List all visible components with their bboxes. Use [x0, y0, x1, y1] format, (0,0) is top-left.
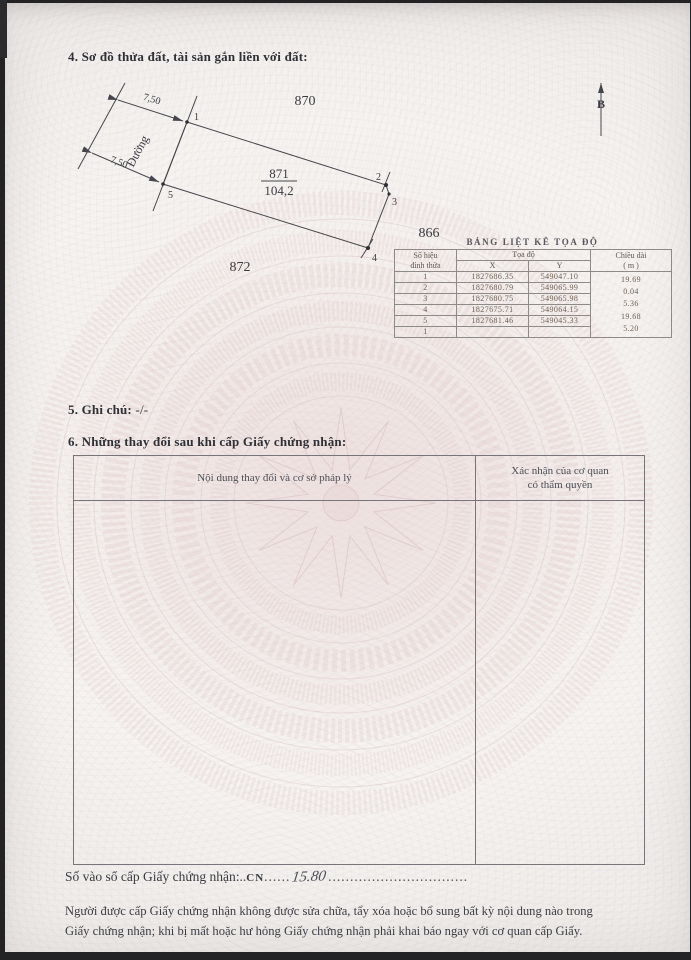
section5-value: -/-	[132, 402, 148, 417]
registry-handwritten-number: 15.80	[291, 868, 327, 886]
col-header-vertex: Số hiệu đỉnh thửa	[395, 250, 457, 272]
changes-col2-body	[476, 501, 644, 864]
neighbor-parcel-870: 870	[295, 94, 316, 109]
registry-code: CN	[246, 872, 264, 884]
changes-col1-header: Nội dung thay đổi và cơ sở pháp lý	[74, 456, 476, 501]
vertex-label-5: 5	[168, 190, 173, 201]
dim-label-top: 7,50	[142, 92, 162, 108]
north-label: B	[597, 97, 605, 111]
col-header-x: X	[457, 261, 529, 272]
coordinate-table-title: BẢNG LIỆT KÊ TỌA ĐỘ	[394, 237, 671, 247]
certificate-paper: 4. Sơ đồ thửa đất, tài sản gắn liền với …	[5, 3, 690, 952]
certificate-page-photo: 4. Sơ đồ thửa đất, tài sản gắn liền với …	[0, 0, 691, 960]
vertex-label-2: 2	[376, 172, 381, 183]
changes-col1-body	[74, 501, 476, 864]
changes-col2-header: Xác nhận của cơ quan có thẩm quyền	[476, 456, 644, 501]
vertex-dot-2	[384, 183, 388, 187]
photo-edge-shadow	[0, 0, 7, 58]
col-header-coords: Tọa độ	[457, 250, 591, 261]
col-header-y: Y	[529, 261, 591, 272]
vertex-label-1: 1	[194, 112, 199, 123]
lengths-cell: 19.69 0.04 5.36 19.68 5.20	[591, 272, 672, 338]
section6-title: 6. Những thay đổi sau khi cấp Giấy chứng…	[68, 434, 346, 450]
parcel-number-871: 871	[269, 166, 289, 181]
vertex-dot-1	[185, 120, 189, 124]
vertex-dot-3	[387, 192, 390, 195]
coordinate-table: BẢNG LIỆT KÊ TỌA ĐỘ Số hiệu đỉnh thửa Tọ…	[394, 237, 671, 338]
vertex-dot-5	[161, 182, 165, 186]
footer-warning: Người được cấp Giấy chứng nhận không đượ…	[65, 901, 647, 941]
col-header-length: Chiều dài ( m )	[591, 250, 672, 272]
section5-note: 5. Ghi chú: -/-	[68, 402, 148, 418]
changes-table: Nội dung thay đổi và cơ sở pháp lý Xác n…	[73, 455, 645, 865]
registry-number-line: Số vào sổ cấp Giấy chứng nhận:..CN......…	[65, 869, 468, 886]
table-row: 11827686.35549047.10 19.69 0.04 5.36 19.…	[395, 272, 672, 283]
parcel-area: 104,2	[264, 183, 293, 198]
vertex-label-3: 3	[392, 197, 397, 208]
vertex-dot-4	[366, 246, 370, 250]
vertex-label-4: 4	[372, 253, 377, 264]
registry-label: Số vào sổ cấp Giấy chứng nhận:..	[65, 869, 246, 884]
neighbor-parcel-872: 872	[230, 260, 251, 275]
tick-vertex-2	[382, 172, 390, 192]
